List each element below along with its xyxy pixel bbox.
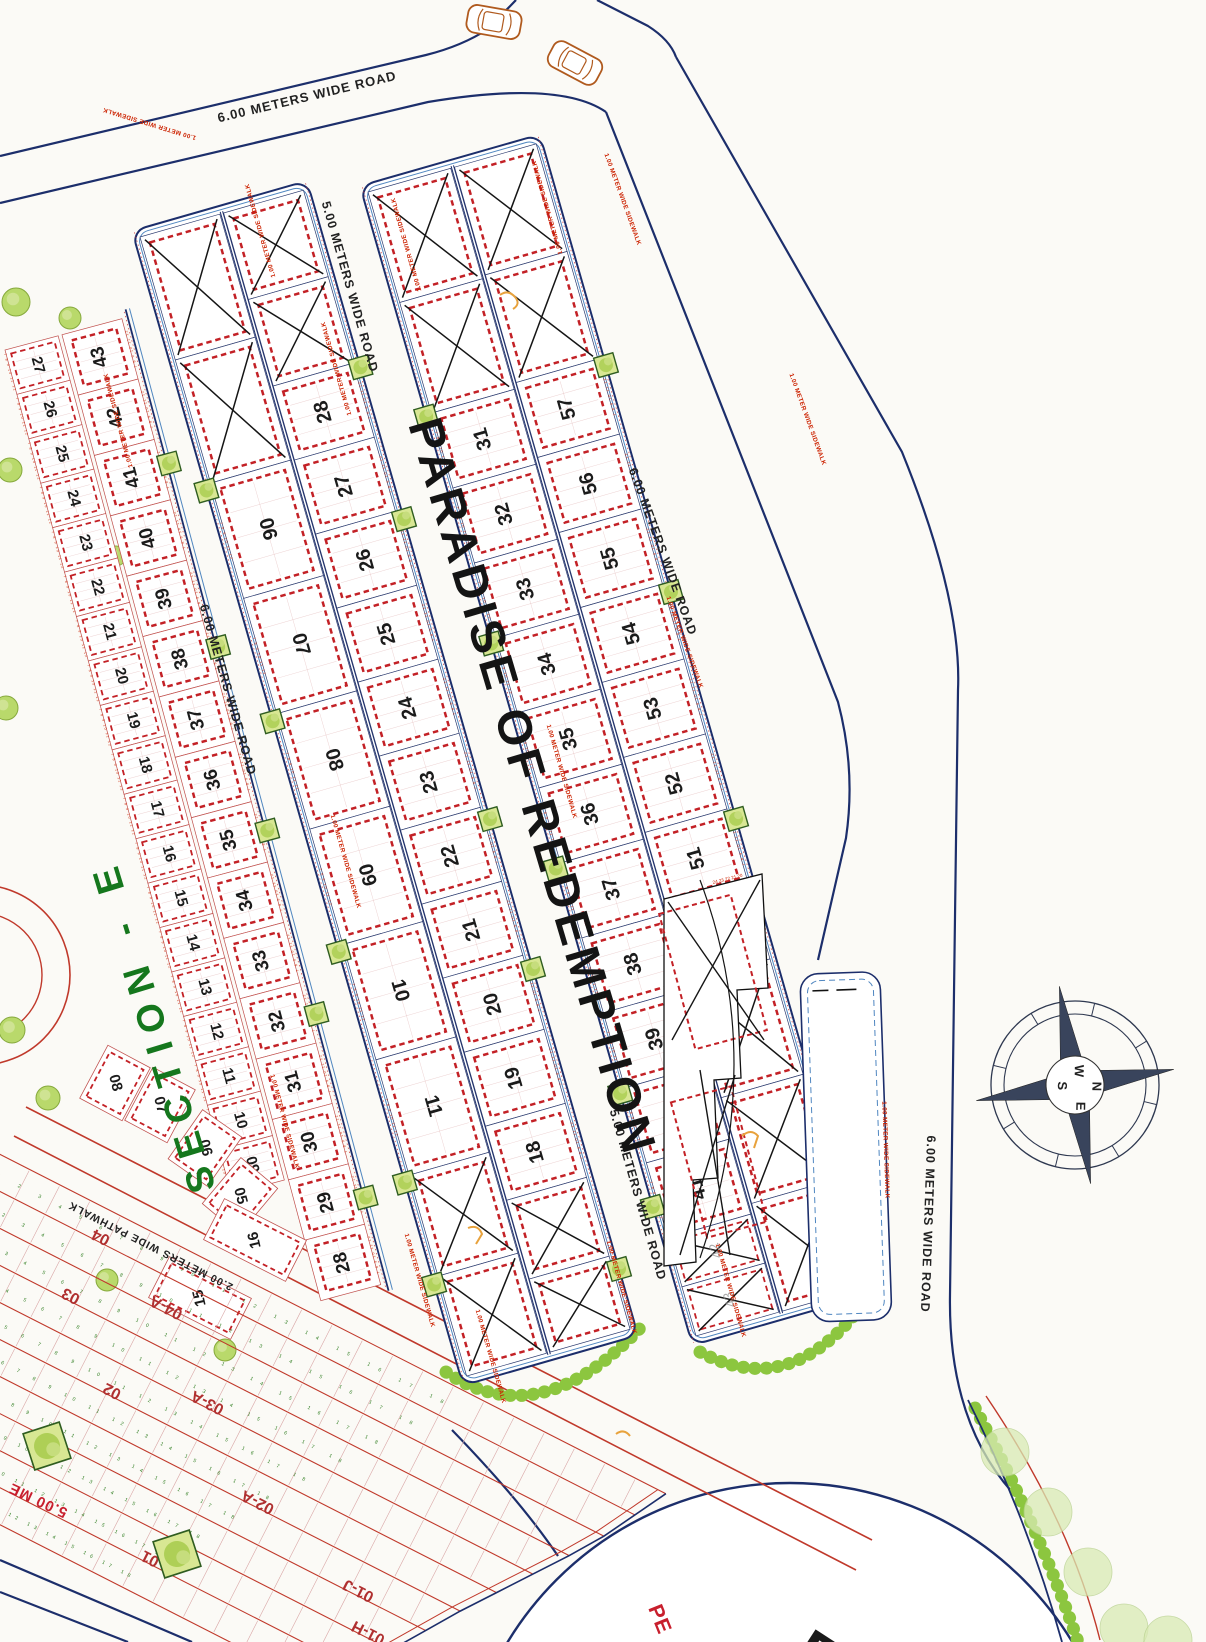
tree-icon	[62, 310, 72, 320]
car-icon	[465, 4, 523, 41]
road-edge	[0, 0, 516, 156]
row-label-01-H: 01-H	[349, 1617, 388, 1642]
row-label-03: 03	[59, 1284, 83, 1307]
tree-icon	[7, 293, 20, 306]
road-edge	[0, 1592, 128, 1642]
tree-icon	[40, 1090, 51, 1101]
site-plan-scan: 067 8 9 10 11 12077 8 9 10 11 12087 8 9 …	[0, 0, 1206, 1642]
road-edge	[597, 0, 676, 57]
compass-e: E	[1073, 1102, 1088, 1111]
road-label: 6.00 METERS WIDE ROAD	[918, 1135, 938, 1313]
generated-map-layers: 067 8 9 10 11 12077 8 9 10 11 12087 8 9 …	[0, 0, 1192, 1642]
tree-icon	[99, 1272, 109, 1282]
tree-icon	[3, 1021, 15, 1033]
site-plan-svg: 067 8 9 10 11 12077 8 9 10 11 12087 8 9 …	[0, 0, 1206, 1642]
tree-cluster	[1024, 1488, 1072, 1536]
planter-icon	[353, 1185, 377, 1209]
compass-rose: N E S W	[961, 971, 1190, 1200]
car-icon	[545, 38, 606, 88]
planter-icon	[157, 451, 181, 475]
planter-icon	[304, 1002, 328, 1026]
svg-text:1 2 3 4 5 6 7 8 9 10 11 12 13: 1 2 3 4 5 6 7 8 9 10 11 12 13 14 15 16 1…	[0, 1379, 202, 1541]
planter-icon	[153, 1530, 201, 1578]
sidewalk-label: 1.00 METER WIDE SIDEWALK	[102, 106, 197, 141]
row-label-01-J: 01-J	[340, 1575, 376, 1605]
tree-cluster	[981, 1428, 1029, 1476]
compass-n: N	[1089, 1082, 1104, 1092]
open-strip-plot	[800, 972, 892, 1323]
compass-star	[961, 971, 1190, 1200]
scan-mark	[616, 1431, 630, 1436]
sidewalk-label: 1.00 METER WIDE SIDEWALK	[602, 153, 642, 247]
compass-w: W	[1072, 1065, 1087, 1078]
tree-icon	[2, 462, 13, 473]
tree-cluster	[1144, 1616, 1192, 1642]
planter-icon	[255, 818, 279, 842]
tree-cluster	[1064, 1548, 1112, 1596]
road-label: 6.00 METERS WIDE ROAD	[216, 68, 398, 125]
sidewalk-label: 1.00 METER WIDE SIDEWALK	[787, 373, 827, 467]
road-label: 2.00 METERS WIDE PATHWALK	[66, 1199, 235, 1293]
compass-s: S	[1055, 1081, 1070, 1090]
tree-cluster	[1100, 1604, 1148, 1642]
